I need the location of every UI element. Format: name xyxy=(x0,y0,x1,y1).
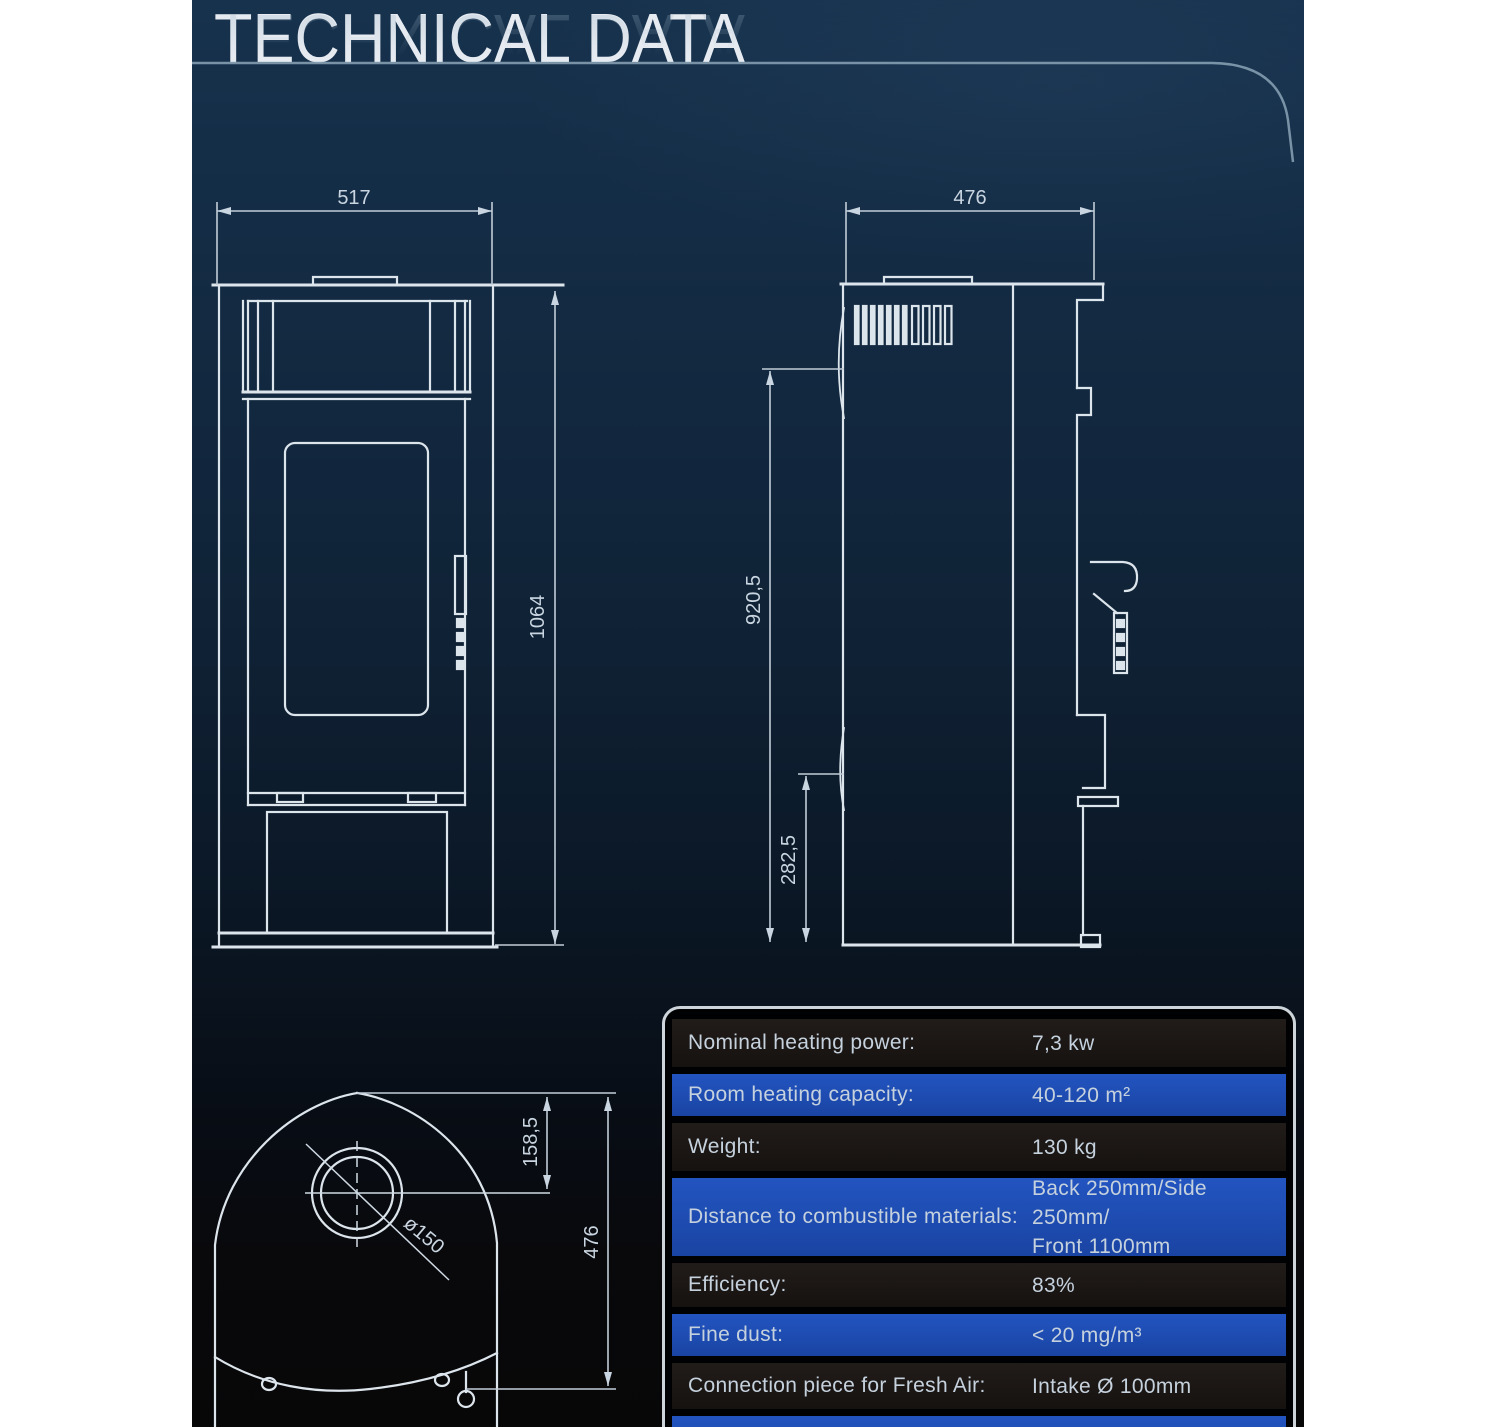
spec-row-room-heating-capacity: Room heating capacity: 40-120 m² xyxy=(672,1074,1286,1116)
top-view-drawing xyxy=(215,1093,497,1427)
side-lower-height-dim-label: 282,5 xyxy=(778,835,800,885)
door-handle-icon xyxy=(1091,562,1137,673)
spec-row-cutoff xyxy=(672,1416,1286,1427)
front-width-dim-label: 517 xyxy=(337,187,370,209)
spec-label: Weight: xyxy=(688,1135,1032,1159)
top-view-centerlines xyxy=(305,1141,550,1280)
spec-value: 7,3 kw xyxy=(1032,1029,1286,1058)
spec-row-nominal-heating-power: Nominal heating power: 7,3 kw xyxy=(672,1019,1286,1067)
front-view-drawing xyxy=(213,277,563,947)
spec-label: Distance to combustible materials: xyxy=(688,1205,1032,1229)
side-upper-height-dim-label: 920,5 xyxy=(743,575,765,625)
content-panel: TECHNICAL DATA TECHNICAL DATA xyxy=(192,0,1304,1427)
front-height-dim-label: 1064 xyxy=(527,595,549,640)
spec-value: 40-120 m² xyxy=(1032,1081,1286,1110)
front-view-dimension-arrows xyxy=(217,207,559,944)
top-depth-dim-label: 476 xyxy=(581,1225,603,1258)
spec-value: 83% xyxy=(1032,1271,1286,1300)
spec-value: Back 250mm/Side 250mm/ Front 1100mm xyxy=(1032,1174,1286,1261)
spec-row-weight: Weight: 130 kg xyxy=(672,1123,1286,1171)
vent-grille-icon xyxy=(855,306,952,344)
spec-value: < 20 mg/m³ xyxy=(1032,1321,1286,1350)
spec-row-efficiency: Efficiency: 83% xyxy=(672,1263,1286,1307)
side-view-drawing xyxy=(839,277,1137,947)
spec-row-distance-to-combustible-materials: Distance to combustible materials: Back … xyxy=(672,1178,1286,1256)
spec-label: Room heating capacity: xyxy=(688,1083,1032,1107)
spec-value: 130 kg xyxy=(1032,1133,1286,1162)
top-flue-offset-dim-label: 158,5 xyxy=(520,1117,542,1167)
side-view-dimensions xyxy=(762,202,1094,942)
spec-label: Fine dust: xyxy=(688,1323,1032,1347)
spec-row-fine-dust: Fine dust: < 20 mg/m³ xyxy=(672,1314,1286,1356)
front-view-dimensions xyxy=(217,202,564,945)
spec-label: Nominal heating power: xyxy=(688,1031,1032,1055)
side-width-dim-label: 476 xyxy=(953,187,986,209)
flue-diameter-dim-label: ø150 xyxy=(399,1212,448,1258)
spec-row-fresh-air-connection: Connection piece for Fresh Air: Intake Ø… xyxy=(672,1363,1286,1409)
title-underline xyxy=(192,63,1293,162)
spec-value: Intake Ø 100mm xyxy=(1032,1372,1286,1401)
spec-label: Connection piece for Fresh Air: xyxy=(688,1374,1032,1398)
spec-label: Efficiency: xyxy=(688,1273,1032,1297)
datasheet-page: TECHNICAL DATA TECHNICAL DATA xyxy=(0,0,1500,1427)
top-view-dimensions xyxy=(357,1093,616,1389)
spec-table: Nominal heating power: 7,3 kw Room heati… xyxy=(662,1006,1296,1427)
